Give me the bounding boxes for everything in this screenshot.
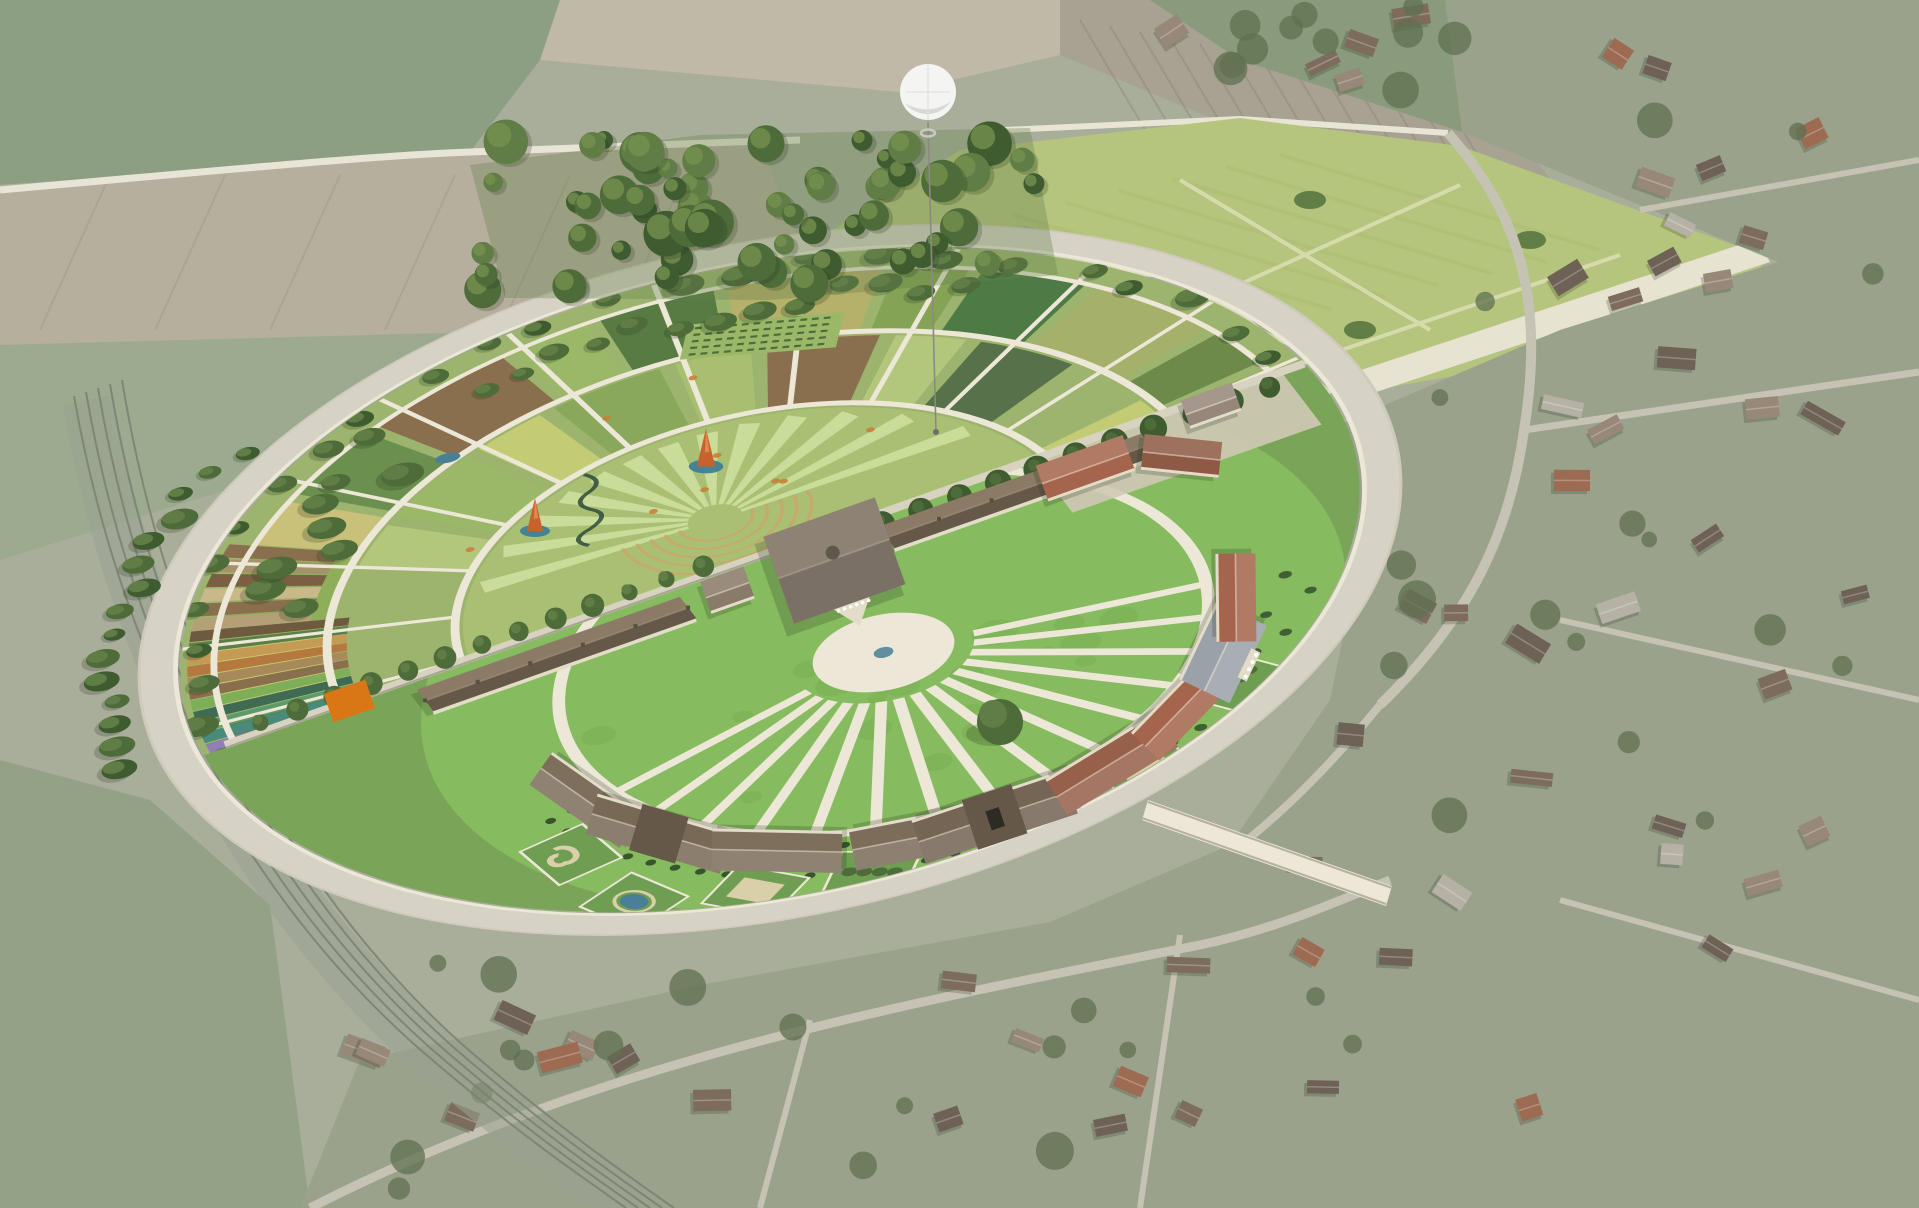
village-tree xyxy=(1214,51,1248,85)
village-tree xyxy=(1832,656,1852,676)
dormer xyxy=(990,498,994,502)
dormer xyxy=(633,624,637,628)
village-tree xyxy=(1398,580,1436,618)
village-tree xyxy=(669,969,706,1006)
village-tree xyxy=(480,956,517,993)
dormer xyxy=(528,661,532,665)
village-house xyxy=(1657,843,1684,869)
village-tree xyxy=(1637,102,1673,138)
village-tree xyxy=(1036,1132,1074,1170)
village-house xyxy=(690,1089,732,1114)
village-tree xyxy=(849,1151,877,1179)
village-house xyxy=(937,970,977,995)
village-tree xyxy=(779,1013,806,1040)
village-tree xyxy=(1754,614,1786,646)
village-tree xyxy=(1619,511,1645,537)
village-tree xyxy=(1618,731,1640,753)
village-tree xyxy=(1431,389,1448,406)
village-tree xyxy=(1387,550,1416,579)
village-tree xyxy=(1306,987,1325,1006)
village-tree xyxy=(1230,10,1261,41)
dormer xyxy=(581,643,585,647)
village-tree xyxy=(1432,797,1468,833)
village-tree xyxy=(429,955,446,972)
village-house xyxy=(1163,957,1210,977)
village-tree xyxy=(388,1177,410,1199)
village-house xyxy=(1304,1080,1339,1097)
village-tree xyxy=(1380,652,1408,680)
meadow-tree xyxy=(1294,191,1326,209)
village-tree xyxy=(1291,2,1317,28)
village-tree xyxy=(1313,28,1339,54)
village-tree xyxy=(1382,72,1419,109)
tether-anchor xyxy=(933,429,939,435)
village-house xyxy=(1441,604,1468,624)
village-house xyxy=(1376,948,1413,970)
village-house xyxy=(1333,722,1365,750)
village-tree xyxy=(1567,633,1585,651)
village-tree xyxy=(896,1097,913,1114)
village-tree xyxy=(1862,263,1884,285)
village-house xyxy=(1654,346,1697,373)
village-tree xyxy=(1696,811,1714,829)
village-tree xyxy=(1438,22,1471,55)
village-tree xyxy=(1641,532,1657,548)
scene-canvas xyxy=(0,0,1919,1208)
village-tree xyxy=(1042,1035,1065,1058)
dormer xyxy=(476,680,480,684)
arc-building xyxy=(711,824,847,873)
dormer xyxy=(423,698,427,702)
village-tree xyxy=(594,1031,624,1061)
meadow-tree xyxy=(1344,321,1376,339)
village-house xyxy=(1742,396,1780,423)
village-tree xyxy=(1475,292,1495,312)
village-tree xyxy=(390,1140,425,1175)
village-house xyxy=(1551,470,1590,494)
village-tree xyxy=(1530,600,1560,630)
village-tree xyxy=(1393,18,1423,48)
village-tree xyxy=(1789,123,1807,141)
village-tree xyxy=(1071,998,1097,1024)
village-tree xyxy=(1119,1042,1136,1059)
arc-building xyxy=(1211,548,1256,642)
village-tree xyxy=(514,1050,535,1071)
village-tree xyxy=(1343,1035,1362,1054)
dormer xyxy=(937,517,941,521)
aerial-view-saline-royale: Aerial photomontage of the Royal Saltwor… xyxy=(0,0,1919,1208)
dormer xyxy=(686,606,690,610)
